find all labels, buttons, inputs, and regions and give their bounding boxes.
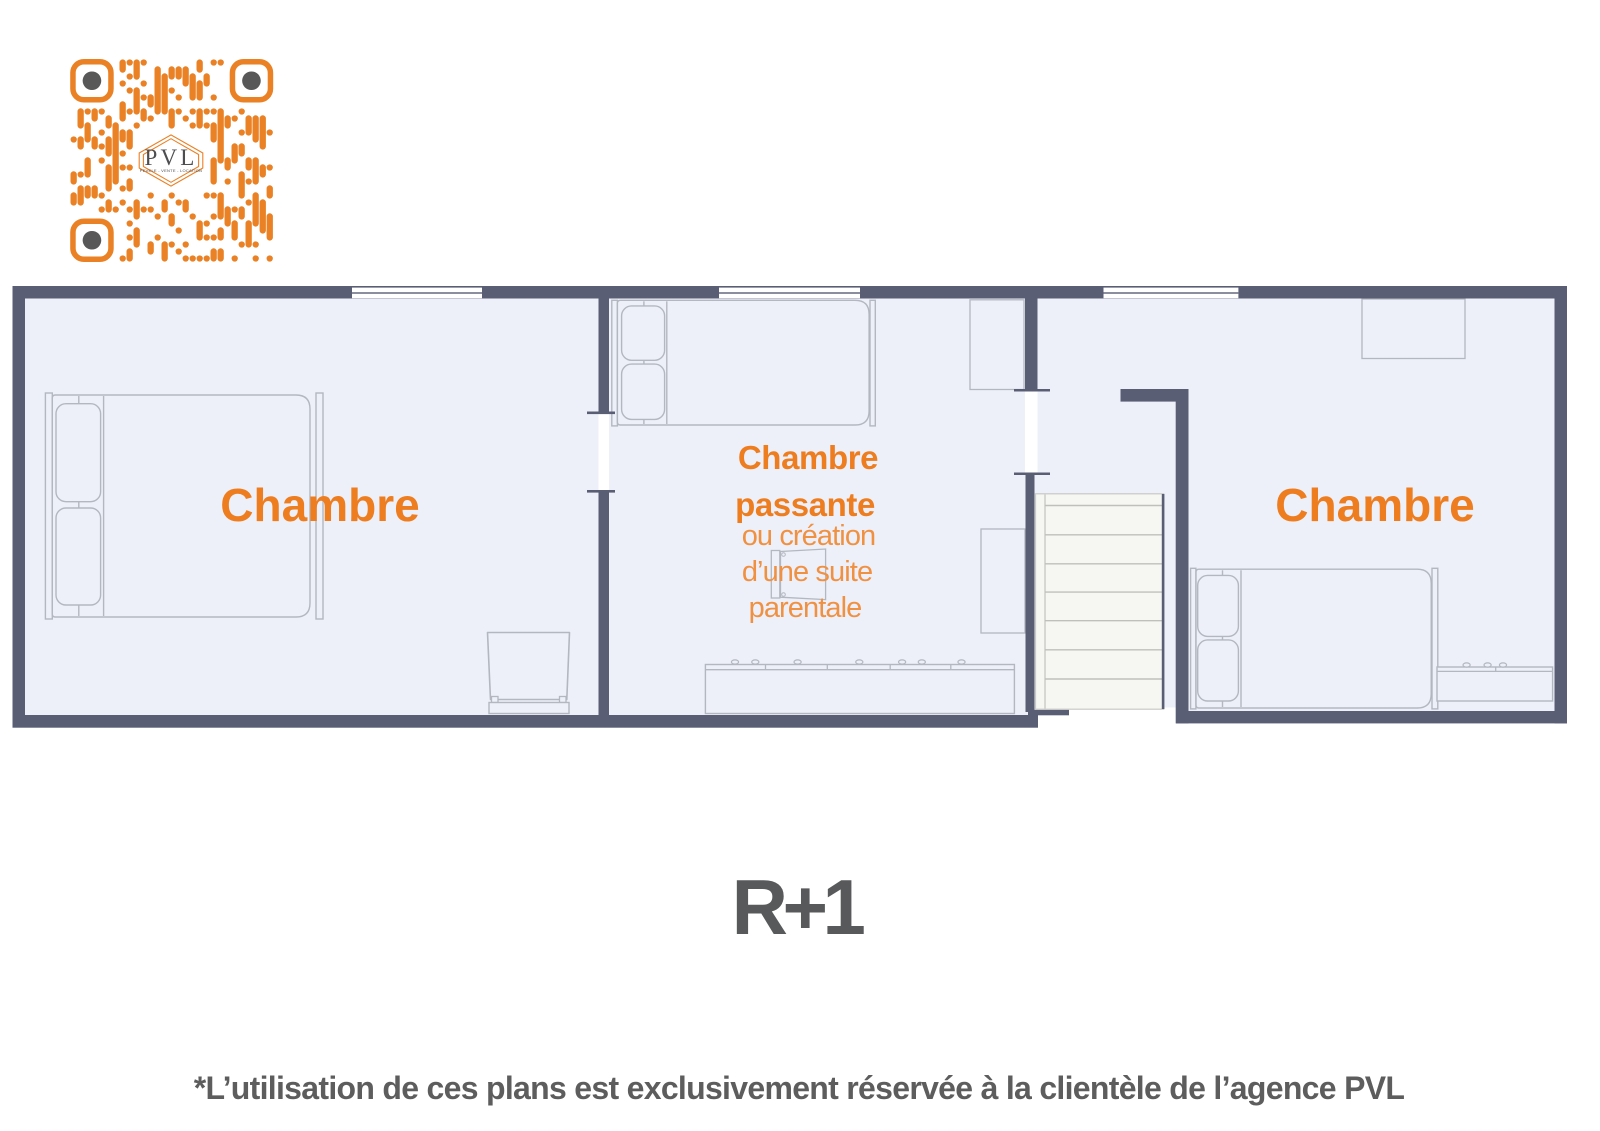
svg-text:PEVELE - VENTE - LOCATION: PEVELE - VENTE - LOCATION <box>140 168 202 173</box>
svg-text:PVL: PVL <box>144 145 197 170</box>
